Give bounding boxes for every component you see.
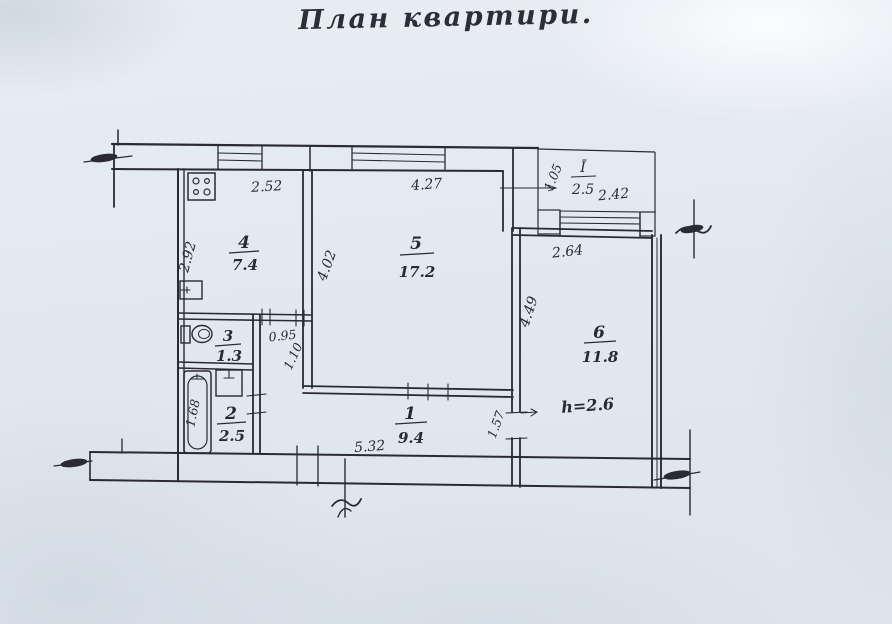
dim-balcony-depth: 1.05 <box>541 162 565 193</box>
window-living-icon <box>352 146 445 170</box>
room-balcony-area: 2.5 <box>571 182 594 198</box>
dim-bathtub-length: 1.68 <box>182 398 202 428</box>
stove-icon <box>188 173 215 200</box>
room-balcony-number: Ī <box>579 158 587 176</box>
room-hall-number: 1 <box>404 404 416 424</box>
room-toilet-area: 1.3 <box>216 347 242 365</box>
dim-balcony-width: 2.42 <box>596 186 630 205</box>
room-label-kitchen: 4 7.4 <box>229 233 259 274</box>
room-living-area: 17.2 <box>399 263 436 281</box>
dim-kitchen-depth: 2.92 <box>176 240 200 275</box>
scanned-page: План квартири. <box>0 0 892 624</box>
room-kitchen-area: 7.4 <box>232 256 258 274</box>
room-labels: 4 7.4 5 17.2 3 1.3 2 2.5 1 <box>215 158 619 447</box>
room-kitchen-number: 4 <box>238 233 250 253</box>
note-ceiling-height: h=2.6 <box>561 394 615 417</box>
room-label-bath: 2 2.5 <box>217 404 246 445</box>
dimension-labels: 2.52 2.92 4.27 4.02 0.95 1.10 1.68 2.64 … <box>176 162 630 457</box>
wall-kitchen-bottom-a <box>178 313 312 315</box>
outer-walls <box>90 130 690 488</box>
wall-bedroom-top-a <box>513 228 652 231</box>
room-bedroom-number: 6 <box>593 323 605 343</box>
axis-marker-bottom-center <box>332 459 361 517</box>
balcony-door-window-icon <box>538 210 655 237</box>
room-living-number: 5 <box>410 234 422 254</box>
axis-marker-bottom-left <box>54 458 92 468</box>
wall-kitchen-bottom-b <box>178 319 312 321</box>
room-bath-number: 2 <box>224 404 237 424</box>
dim-living-depth: 4.02 <box>314 248 340 284</box>
room-bath-area: 2.5 <box>218 427 245 445</box>
door-dim-tick <box>521 409 537 416</box>
room-label-toilet: 3 1.3 <box>215 327 242 365</box>
wall-bottom-bottom-line <box>90 480 690 488</box>
axis-marker-right <box>676 200 711 258</box>
balcony-outline <box>500 149 655 213</box>
wall-top-outer <box>112 144 538 148</box>
room-label-balcony: Ī 2.5 <box>571 158 596 198</box>
axis-markers <box>54 153 711 517</box>
wall-bedroom-top-b <box>513 235 652 238</box>
dim-living-width: 4.27 <box>410 176 443 194</box>
washbasin-icon <box>216 370 242 396</box>
dim-bedroom-top: 2.64 <box>550 242 584 261</box>
room-bedroom-area: 11.8 <box>582 348 619 366</box>
dim-nook-depth: 1.10 <box>280 340 305 372</box>
dim-kitchen-width: 2.52 <box>250 178 283 196</box>
axis-marker-top-left <box>84 153 132 163</box>
room-label-hall: 1 9.4 <box>395 404 427 447</box>
room-toilet-number: 3 <box>223 327 233 345</box>
room-hall-area: 9.4 <box>398 429 424 447</box>
wc-icon <box>181 326 212 344</box>
room-label-living: 5 17.2 <box>399 234 436 281</box>
wall-bottom-top-line <box>90 452 690 459</box>
dim-hall-right: 1.57 <box>484 409 508 440</box>
window-kitchen-icon <box>218 146 262 170</box>
room-label-bedroom: 6 11.8 <box>582 323 619 366</box>
dim-hall-bottom: 5.32 <box>354 438 386 456</box>
floor-plan: 4 7.4 5 17.2 3 1.3 2 2.5 1 <box>0 0 892 624</box>
